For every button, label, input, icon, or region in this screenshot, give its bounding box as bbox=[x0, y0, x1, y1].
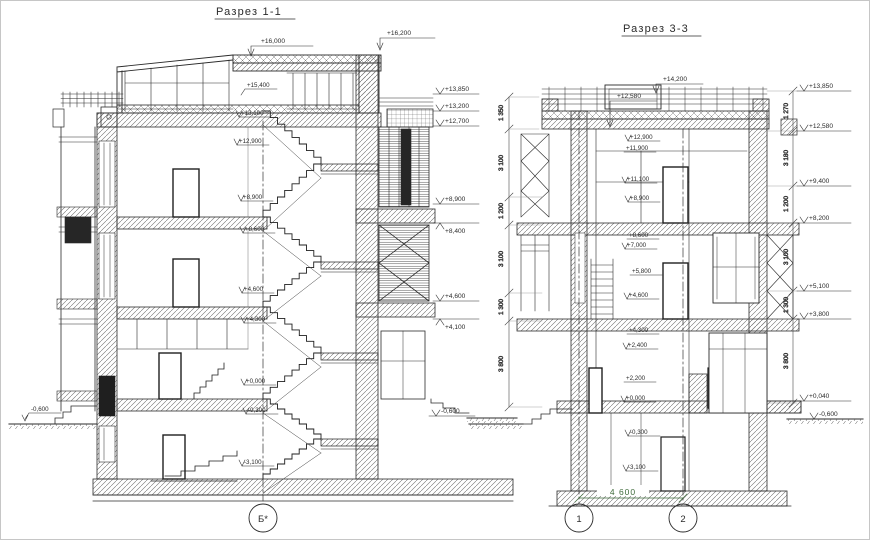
elevation-mark: +14,200 bbox=[663, 76, 687, 83]
dim-text: 1 200 bbox=[783, 196, 790, 212]
dim-text: 1 300 bbox=[498, 299, 505, 315]
svg-text:+11,900: +11,900 bbox=[626, 145, 649, 152]
svg-text:-3,100: -3,100 bbox=[244, 459, 262, 466]
roof-slab bbox=[97, 113, 381, 127]
elevation-mark: +2,200 bbox=[624, 375, 656, 382]
footing-lines bbox=[93, 495, 513, 501]
svg-text:+4,300: +4,300 bbox=[629, 327, 649, 334]
elevation-flag: +12,580 bbox=[797, 123, 851, 131]
mark-leader bbox=[377, 38, 435, 50]
svg-text:+0,000: +0,000 bbox=[626, 395, 646, 402]
ground-hatch bbox=[787, 419, 863, 424]
stair-landing bbox=[321, 164, 378, 171]
balcony-slab bbox=[57, 207, 97, 217]
bottom-dim-text: 4 600 bbox=[610, 487, 636, 497]
hatched-pier bbox=[689, 374, 707, 413]
elevation-mark: +4,300 bbox=[241, 316, 276, 323]
s33-inner-marks: +12,900 +11,900 +11,100 +8,900 +8,600 +7… bbox=[621, 134, 662, 471]
svg-text:+13,100: +13,100 bbox=[241, 110, 264, 117]
elevation-flag: +8,900 bbox=[433, 196, 479, 204]
svg-text:+8,900: +8,900 bbox=[243, 194, 263, 201]
svg-text:-0,300: -0,300 bbox=[248, 407, 266, 414]
interior-steps bbox=[194, 363, 224, 399]
cornice-rails bbox=[379, 98, 433, 106]
stair-flight bbox=[263, 307, 321, 353]
dim-text: 1 270 bbox=[783, 103, 790, 119]
drawing-canvas: Разрез 1-1 +16,000 +16,200 +13,850 +13,2… bbox=[1, 1, 870, 540]
stair-run bbox=[591, 259, 613, 319]
s11-right-facade bbox=[379, 98, 469, 413]
console-box bbox=[53, 109, 64, 127]
svg-text:-0,300: -0,300 bbox=[630, 429, 648, 436]
svg-text:+12,700: +12,700 bbox=[445, 118, 469, 125]
dim-text: 1 200 bbox=[498, 203, 505, 219]
elevation-flag: +8,200 bbox=[797, 215, 851, 223]
window-band bbox=[117, 319, 248, 349]
svg-text:-0,600: -0,600 bbox=[441, 408, 460, 415]
svg-text:+12,900: +12,900 bbox=[630, 134, 653, 141]
svg-text:+13,850: +13,850 bbox=[809, 83, 833, 90]
floor-slab bbox=[517, 319, 799, 331]
dim-extensions bbox=[509, 97, 542, 407]
elevation-mark: +8,600 bbox=[240, 226, 275, 233]
svg-text:+12,580: +12,580 bbox=[809, 123, 833, 130]
section-1-1: Разрез 1-1 +16,000 +16,200 +13,850 +13,2… bbox=[9, 6, 517, 532]
svg-text:+4,600: +4,600 bbox=[445, 293, 466, 300]
elevation-mark: +7,000 bbox=[622, 242, 657, 249]
drawing-sheet: Разрез 1-1 +16,000 +16,200 +13,850 +13,2… bbox=[0, 0, 870, 540]
stair-landing bbox=[321, 439, 378, 446]
svg-text:+8,900: +8,900 bbox=[630, 195, 650, 202]
window-opening bbox=[99, 233, 115, 299]
elevation-flag: +13,850 bbox=[433, 86, 479, 94]
elevation-flag: -0,600 bbox=[807, 411, 857, 419]
dark-panel bbox=[65, 217, 91, 243]
ground-hatch bbox=[469, 424, 523, 429]
elevation-mark: +8,900 bbox=[238, 194, 273, 201]
sloped-roof bbox=[117, 55, 233, 113]
mark-leader bbox=[248, 46, 313, 56]
s33-right-flags: +13,850 +12,580 +9,400 +8,200 +5,100 +3,… bbox=[797, 83, 857, 419]
parapet bbox=[753, 99, 769, 111]
axis-label: 2 bbox=[680, 514, 685, 525]
dim-text: 3 800 bbox=[783, 353, 790, 369]
svg-text:+13,850: +13,850 bbox=[445, 86, 469, 93]
door bbox=[159, 353, 181, 399]
dim-text: 3 100 bbox=[498, 251, 505, 267]
svg-text:+8,400: +8,400 bbox=[445, 228, 466, 235]
balcony-slab bbox=[356, 303, 435, 317]
elevation-mark: +4,600 bbox=[239, 286, 274, 293]
elevation-flag: +9,400 bbox=[797, 178, 851, 186]
svg-text:+7,000: +7,000 bbox=[627, 242, 647, 249]
svg-text:+9,400: +9,400 bbox=[809, 178, 830, 185]
dim-text: 3 800 bbox=[498, 356, 505, 372]
elevation-flag: +13,850 bbox=[797, 83, 851, 91]
dim-text: 1 300 bbox=[783, 297, 790, 313]
svg-text:+15,400: +15,400 bbox=[247, 82, 270, 89]
penthouse-glazing bbox=[117, 60, 233, 111]
dim-text: 3 100 bbox=[783, 249, 790, 265]
penthouse-window bbox=[287, 73, 357, 109]
svg-text:+11,100: +11,100 bbox=[627, 176, 650, 183]
ground-hatch bbox=[467, 418, 517, 423]
elevation-flag: +4,600 bbox=[433, 293, 479, 301]
left-brace-panel bbox=[521, 134, 549, 217]
svg-text:+0,040: +0,040 bbox=[809, 393, 830, 400]
door bbox=[589, 368, 602, 413]
svg-text:+8,200: +8,200 bbox=[809, 215, 830, 222]
s11-right-flags: +13,850 +13,200 +12,700 +8,900 +8,400 +4… bbox=[429, 86, 479, 416]
elevation-mark: -0,300 bbox=[243, 407, 278, 414]
elevation-flag: +4,100 bbox=[433, 319, 479, 331]
elevation-flag: +3,800 bbox=[797, 311, 851, 319]
section-title: Разрез 3-3 bbox=[623, 23, 689, 35]
door bbox=[163, 435, 185, 479]
floor-slab bbox=[117, 399, 267, 411]
svg-text:-0,600: -0,600 bbox=[31, 406, 49, 413]
svg-text:+8,600: +8,600 bbox=[245, 226, 265, 233]
elevation-flag: +0,040 bbox=[797, 393, 851, 401]
elevation-mark: +5,800 bbox=[630, 268, 662, 275]
basement-partitions bbox=[611, 413, 641, 491]
door bbox=[663, 263, 688, 319]
elevation-mark: +4,600 bbox=[624, 292, 659, 299]
elevation-mark: +12,900 bbox=[625, 134, 660, 141]
axis-bubble: Б* bbox=[249, 504, 277, 532]
axis-label: 1 bbox=[576, 514, 581, 525]
section-3-3: 1 350 3 100 1 200 3 100 1 300 3 800 1 27… bbox=[469, 23, 863, 532]
elevation-flag: +13,200 bbox=[433, 103, 479, 111]
roof-insulation bbox=[542, 111, 769, 119]
svg-text:+13,200: +13,200 bbox=[445, 103, 469, 110]
elevation-mark: +16,200 bbox=[387, 30, 411, 37]
elevation-flag: +8,400 bbox=[433, 223, 479, 235]
dark-door-opening bbox=[99, 376, 115, 416]
parapet bbox=[542, 99, 558, 111]
storefront-window bbox=[709, 333, 767, 413]
elevation-mark: +2,400 bbox=[623, 342, 658, 349]
section-title: Разрез 1-1 bbox=[216, 6, 282, 18]
axis-label: Б* bbox=[258, 514, 268, 525]
svg-text:+4,100: +4,100 bbox=[445, 324, 466, 331]
window-opening bbox=[99, 426, 115, 462]
elevation-mark: +15,400 bbox=[241, 82, 277, 95]
svg-text:+4,300: +4,300 bbox=[246, 316, 266, 323]
dim-text: 1 350 bbox=[498, 105, 505, 121]
dim-text: 3 180 bbox=[783, 150, 790, 166]
door bbox=[661, 437, 685, 491]
svg-text:+5,800: +5,800 bbox=[632, 268, 652, 275]
balcony-posts bbox=[61, 127, 95, 411]
svg-text:+2,400: +2,400 bbox=[628, 342, 648, 349]
svg-text:+8,600: +8,600 bbox=[629, 232, 649, 239]
balcony-slab bbox=[57, 391, 97, 401]
elevation-flag: -0,600 bbox=[429, 408, 475, 416]
svg-text:+2,200: +2,200 bbox=[626, 375, 646, 382]
balcony-slab bbox=[57, 299, 97, 309]
door bbox=[173, 259, 199, 307]
elevation-mark: -0,300 bbox=[625, 429, 660, 436]
elevation-mark: +12,900 bbox=[234, 138, 269, 145]
svg-text:+5,100: +5,100 bbox=[809, 283, 830, 290]
stair-soffits bbox=[263, 125, 321, 493]
floor-slab bbox=[117, 307, 267, 319]
stair-landing bbox=[321, 262, 378, 269]
window-opening bbox=[99, 141, 115, 207]
stair-landing bbox=[321, 353, 378, 360]
balcony-stub bbox=[781, 119, 797, 135]
door bbox=[173, 169, 199, 217]
planter-grid bbox=[387, 109, 433, 127]
elevation-mark: +8,900 bbox=[625, 195, 660, 202]
stair-flight bbox=[263, 217, 321, 262]
foundation-slab bbox=[557, 491, 787, 506]
elevation-mark: +0,000 bbox=[241, 378, 276, 385]
svg-text:+3,800: +3,800 bbox=[809, 311, 830, 318]
stair-flight bbox=[263, 164, 321, 217]
left-window-panel bbox=[521, 235, 549, 311]
dim-text: 3 100 bbox=[498, 155, 505, 171]
elevation-mark: -3,100 bbox=[239, 459, 274, 466]
svg-text:-0,600: -0,600 bbox=[819, 411, 838, 418]
terrace-railing bbox=[61, 92, 123, 107]
wall-opening bbox=[575, 233, 585, 303]
roof-slab bbox=[542, 119, 769, 129]
brace-panel bbox=[379, 225, 429, 301]
svg-text:-3,100: -3,100 bbox=[628, 464, 646, 471]
svg-text:+12,900: +12,900 bbox=[239, 138, 262, 145]
elevation-mark: +12,580 bbox=[617, 93, 641, 100]
svg-text:+0,000: +0,000 bbox=[246, 378, 266, 385]
balcony-slab bbox=[356, 209, 435, 223]
elevation-mark: +16,000 bbox=[261, 38, 285, 45]
elevation-flag: +12,700 bbox=[433, 118, 479, 126]
elevation-mark: -3,100 bbox=[623, 464, 658, 471]
elevation-flag: +5,100 bbox=[797, 283, 851, 291]
penthouse-wall bbox=[359, 55, 379, 113]
dark-strip bbox=[401, 129, 411, 205]
door bbox=[663, 167, 688, 223]
stair-flight bbox=[263, 262, 321, 307]
svg-text:+8,900: +8,900 bbox=[445, 196, 466, 203]
svg-text:+4,600: +4,600 bbox=[629, 292, 649, 299]
svg-text:+4,600: +4,600 bbox=[244, 286, 264, 293]
ground-hatch bbox=[9, 424, 97, 429]
